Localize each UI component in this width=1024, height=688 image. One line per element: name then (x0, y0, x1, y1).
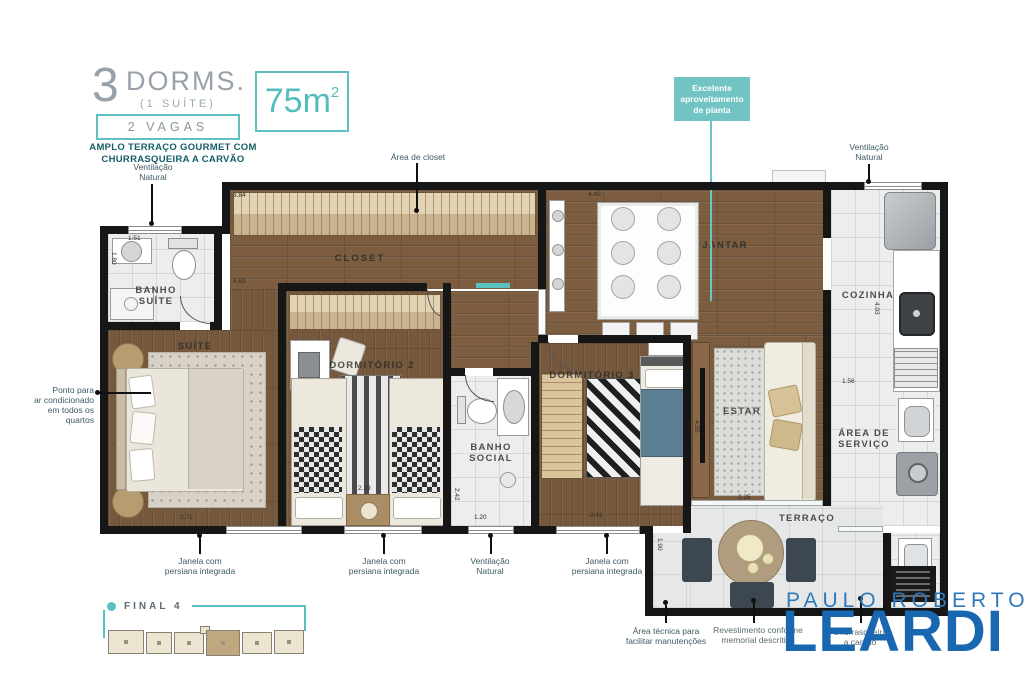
wall-segment (451, 368, 465, 376)
wall-segment (302, 526, 344, 534)
wall-segment (538, 189, 546, 289)
dorms-count: 3 (92, 58, 119, 113)
room-label-servico: ÁREA DE SERVIÇO (832, 428, 896, 450)
note-janela-dorm3: Janela com persiana integrada (567, 556, 647, 576)
leader-dot (751, 598, 756, 603)
room-floor-hall (451, 291, 538, 368)
dimension: 1.56 (842, 378, 855, 385)
keyplan-mark (187, 641, 191, 645)
leader-line (753, 603, 755, 623)
keyplan-dot (107, 602, 116, 611)
service-door (838, 526, 883, 532)
note-ventilacao-banho: Ventilação Natural (122, 162, 184, 182)
keyplan-mark (255, 641, 259, 645)
bed-blanket (188, 369, 243, 489)
dimension: 1.20 (474, 514, 487, 521)
room-label-estar: ESTAR (714, 406, 770, 417)
dimension: 2.19 (358, 485, 371, 492)
wall-segment (640, 526, 653, 534)
estar-rug (714, 348, 766, 496)
leader-line (99, 392, 151, 394)
wall-segment (100, 226, 108, 534)
dimension: 1.80 (110, 252, 117, 265)
room-label-banho-social: BANHO SOCIAL (448, 442, 534, 464)
note-ventilacao-cozinha: Ventilação Natural (838, 142, 900, 162)
callout-leader-line (710, 121, 712, 301)
keyplan-mark (287, 640, 291, 644)
leader-dot (381, 533, 386, 538)
room-label-dorm3: DORMITÓRIO 3 (537, 370, 647, 381)
plate (611, 275, 635, 299)
pillow (129, 448, 156, 482)
leader-line (151, 184, 153, 224)
faucet (913, 310, 920, 317)
window (226, 526, 302, 534)
plate (611, 207, 635, 231)
keyplan-line (192, 605, 306, 607)
tv (700, 368, 705, 463)
wall-segment (278, 283, 286, 533)
keyplan-line (304, 605, 306, 631)
note-area-tecnica: Área técnica para facilitar manutenções (616, 626, 716, 646)
wall-segment (823, 290, 831, 506)
pillow (645, 369, 685, 388)
window (128, 226, 182, 234)
sofa-pillow (767, 384, 802, 418)
decor-plate (552, 244, 564, 256)
cased-opening (538, 289, 546, 335)
sofa (764, 342, 816, 502)
single-bed (291, 378, 347, 526)
floorplan-page: 3 DORMS. (1 SUÍTE) 2 VAGAS AMPLO TERRAÇO… (0, 0, 1024, 688)
terrace-chair (682, 538, 712, 582)
leader-line (416, 163, 418, 211)
toilet-bowl (172, 250, 196, 280)
plate (657, 275, 681, 299)
shower-drain (500, 472, 516, 488)
sliding-glass-door (691, 500, 823, 506)
wall-segment (531, 342, 539, 533)
room-floor-corridor (230, 289, 278, 330)
dorm3-wardrobe (541, 373, 583, 479)
wall-segment (285, 283, 427, 291)
wall-segment (683, 335, 691, 533)
plate (611, 241, 635, 265)
leader-dot (663, 600, 668, 605)
bed-pattern-blanket (392, 427, 440, 493)
wall-segment (940, 182, 948, 616)
wall-segment (100, 526, 226, 534)
terrace-small-plate (747, 562, 759, 574)
dorms-label: DORMS. (126, 66, 246, 97)
wall-segment (823, 182, 831, 238)
leader-dot (95, 390, 100, 395)
single-bed (389, 378, 445, 526)
note-ventilacao-banho-social: Ventilação Natural (459, 556, 521, 576)
keyplan-label: FINAL 4 (124, 601, 183, 612)
decor-plate (552, 278, 564, 290)
wall-segment (100, 322, 180, 330)
room-label-cozinha: COZINHA (836, 290, 900, 301)
desk-laptop (298, 352, 320, 378)
dorms-subtitle: (1 SUÍTE) (140, 98, 216, 110)
callout-note: Excelente aproveitamento de planta (674, 77, 750, 121)
room-label-banho-suite: BANHO SUÍTE (126, 285, 186, 307)
area-value: 75m (265, 82, 331, 121)
fridge (884, 192, 936, 250)
window (556, 526, 640, 534)
plate (657, 241, 681, 265)
plate (657, 207, 681, 231)
leader-dot (604, 533, 609, 538)
bed-pattern-blanket (294, 427, 342, 493)
toilet-tank (457, 396, 466, 424)
area-badge: 75m2 (255, 71, 349, 132)
terrace-small-plate (762, 553, 774, 565)
parking-badge: 2 VAGAS (96, 114, 240, 140)
leader-dot (414, 208, 419, 213)
closet-wardrobe (233, 192, 536, 236)
leader-line (199, 537, 201, 554)
dimension: 4.40 (588, 191, 601, 198)
room-label-jantar: JANTAR (690, 240, 760, 251)
wall-segment (538, 335, 548, 343)
highlighted-passage (476, 283, 510, 288)
dorm2-wardrobe (289, 294, 441, 330)
laundry-tub-basin (904, 406, 930, 437)
logo-leardi: LEARDI (782, 603, 1004, 661)
dimension: 4.63 (233, 278, 246, 285)
sink-round (121, 241, 142, 262)
terrace-chair (730, 582, 774, 608)
bed-headboard (116, 368, 126, 490)
leader-line (606, 537, 608, 554)
room-label-terraco: TERRAÇO (772, 513, 842, 524)
sink-oval (503, 390, 525, 424)
dimension: 2.71 (180, 514, 193, 521)
keyplan-mark (157, 641, 161, 645)
leader-dot (866, 179, 871, 184)
sofa-pillow (769, 419, 803, 452)
note-janela-dorm2: Janela com persiana integrada (344, 556, 424, 576)
dimension: 4.03 (873, 302, 880, 315)
feature-text: AMPLO TERRAÇO GOURMET COM CHURRASQUEIRA … (80, 142, 266, 165)
washer-door (908, 463, 928, 483)
wall-segment (578, 335, 683, 343)
note-janela-suite: Janela com persiana integrada (160, 556, 240, 576)
sofa-back (802, 343, 815, 499)
decor-plate (552, 210, 564, 222)
pillow (393, 497, 441, 519)
bed-headboard (641, 357, 687, 366)
bed-blue-blanket (641, 389, 687, 457)
leader-line (665, 605, 667, 623)
pillow (295, 497, 343, 519)
terrace-chair (786, 538, 816, 582)
leader-line (383, 537, 385, 554)
area-superscript: 2 (331, 84, 339, 101)
wall-segment (214, 226, 222, 330)
pillow (129, 411, 156, 445)
room-label-closet: CLOSET (320, 253, 400, 264)
single-bed-dorm3 (640, 356, 688, 506)
dimension: 3.84 (233, 192, 246, 199)
dimension: 4.55 (693, 420, 700, 433)
dimension: 2.41 (590, 512, 603, 519)
lamp (360, 502, 378, 520)
dimension: 2.42 (453, 488, 460, 501)
note-area-closet: Área de closet (382, 152, 454, 162)
room-label-suite: SUÍTE (165, 341, 225, 352)
dimension: 1.90 (656, 538, 663, 551)
dorm3-rug (586, 378, 642, 478)
note-ponto-ar: Ponto para ar condicionado em todos os q… (22, 385, 94, 425)
leader-dot (197, 533, 202, 538)
keyplan-mark (221, 641, 225, 645)
window (864, 182, 922, 190)
room-label-dorm2: DORMITÓRIO 2 (322, 360, 422, 371)
leader-dot (149, 221, 154, 226)
dimension: 1.51 (128, 235, 141, 242)
leader-line (490, 537, 492, 554)
wall-segment (443, 283, 451, 533)
toilet-tank (168, 238, 198, 249)
keyplan-line (103, 610, 105, 638)
keyplan-mark (124, 640, 128, 644)
terrace-plate (736, 534, 764, 562)
stove (894, 348, 938, 388)
leader-dot (488, 533, 493, 538)
